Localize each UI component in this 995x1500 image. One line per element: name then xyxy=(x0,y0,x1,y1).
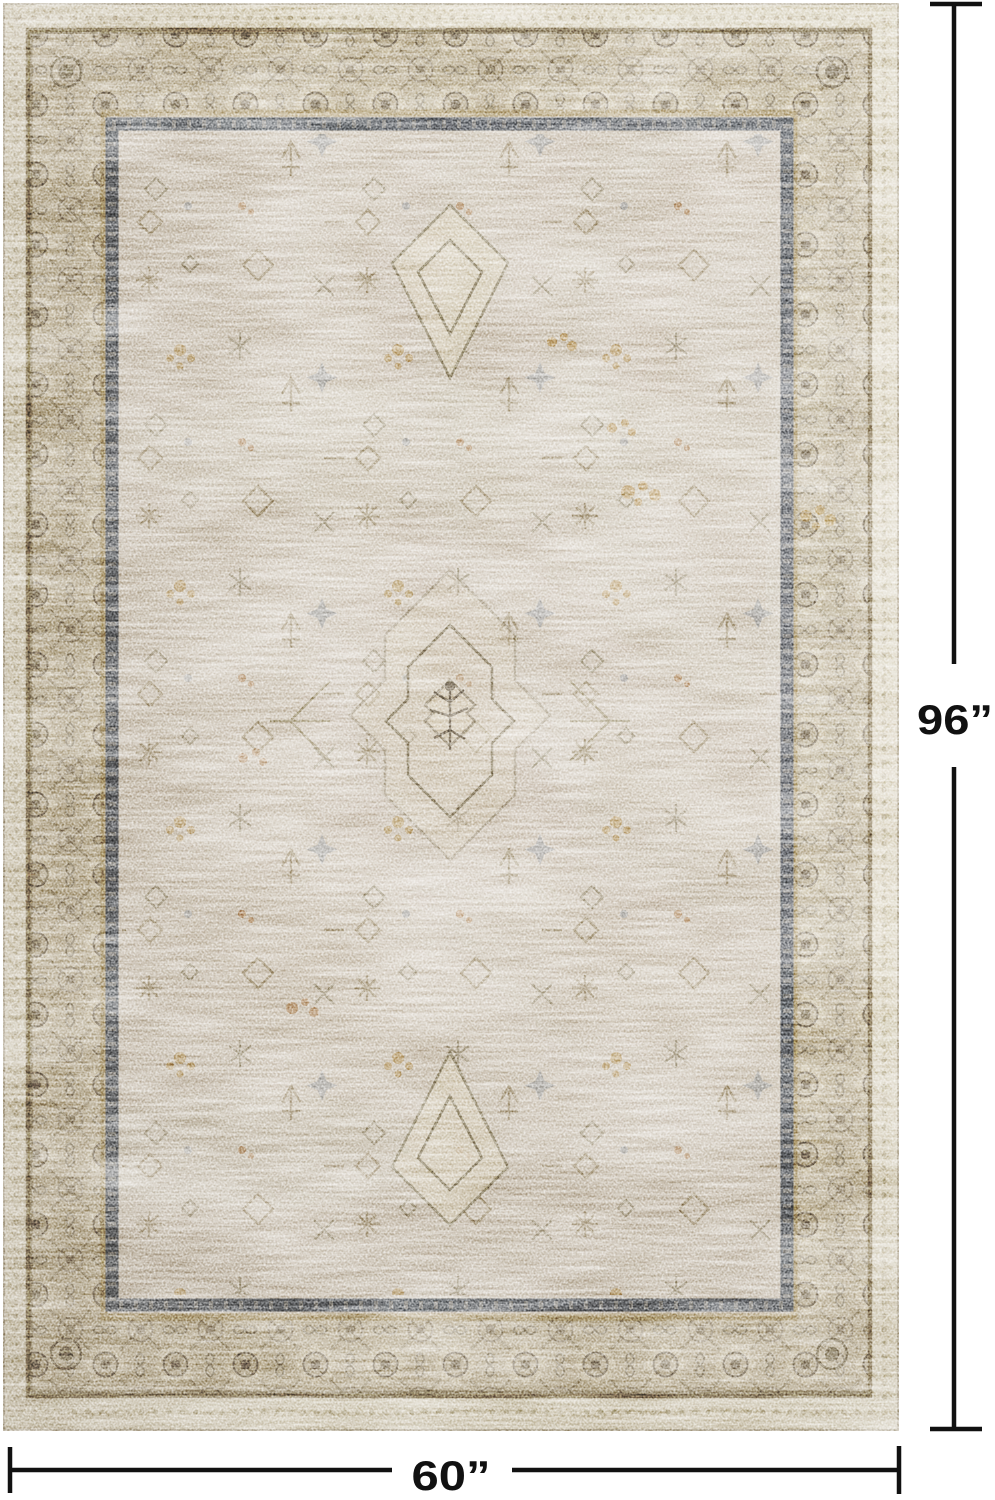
svg-text:60”: 60” xyxy=(412,1452,491,1499)
svg-text:96”: 96” xyxy=(917,696,993,743)
